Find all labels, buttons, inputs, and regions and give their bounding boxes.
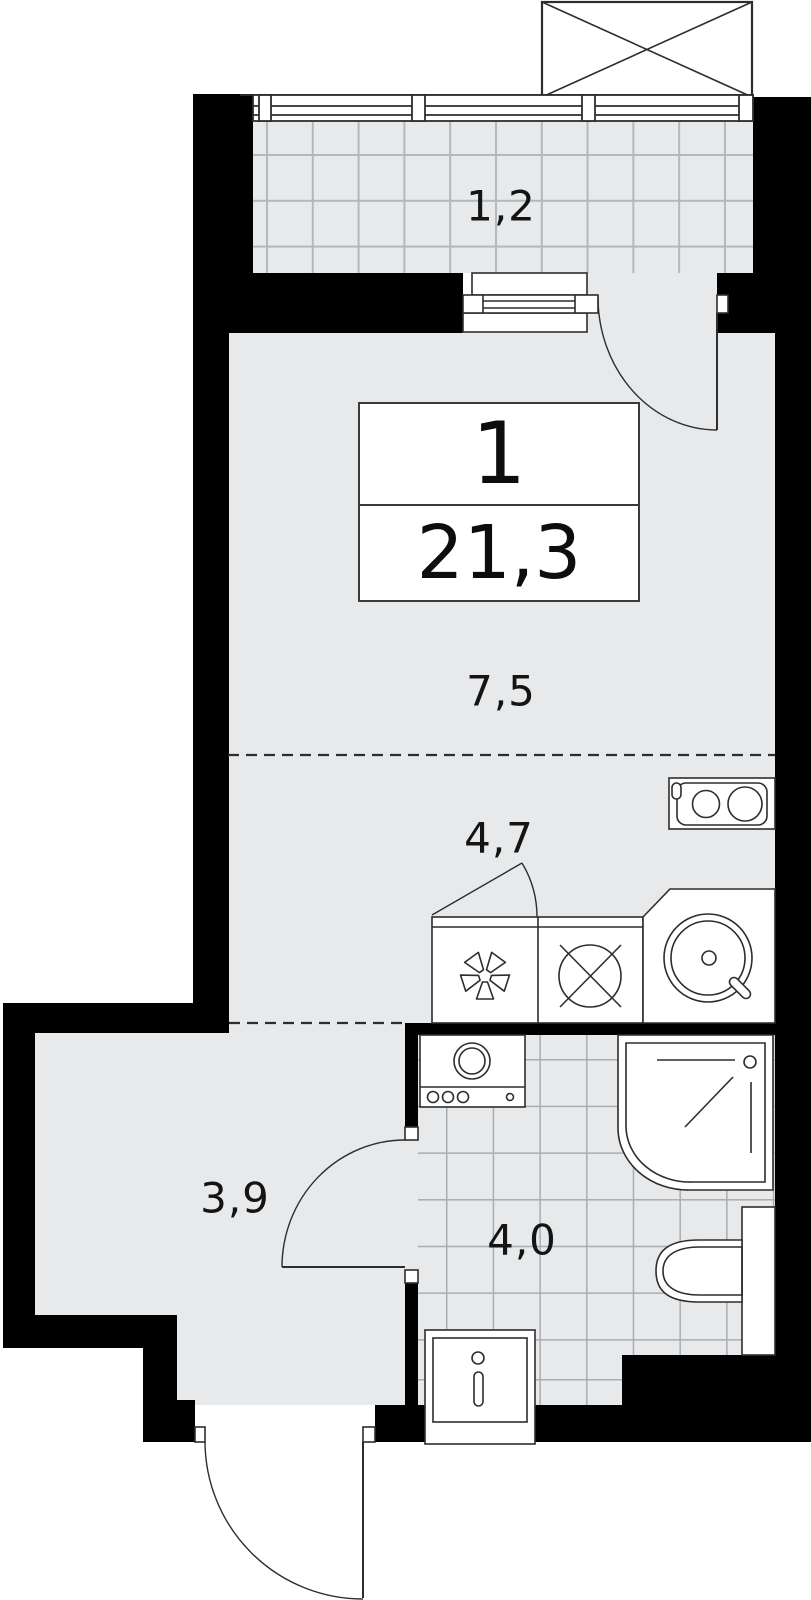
bathroom-doorway-floor bbox=[405, 1140, 418, 1270]
bathroom-floor-low bbox=[418, 1355, 622, 1405]
wall-hall-top bbox=[3, 1003, 229, 1033]
wall-under-balcony bbox=[193, 273, 463, 333]
total-area: 21,3 bbox=[360, 504, 638, 600]
wall-hinge-upper bbox=[717, 273, 728, 295]
wall-bathroom-top bbox=[405, 1023, 775, 1035]
wall-entry-right bbox=[375, 1405, 622, 1442]
wall-room-left bbox=[193, 333, 229, 1003]
kitchen-area-label: 4,7 bbox=[464, 814, 534, 863]
entrance-door-icon bbox=[195, 1427, 375, 1599]
living-room-area-label: 7,5 bbox=[466, 667, 536, 716]
shaft-box-icon bbox=[542, 2, 752, 97]
balcony-glazing-icon bbox=[240, 95, 753, 121]
wall-hinge-lower bbox=[717, 313, 728, 333]
bathroom-floor bbox=[418, 1035, 775, 1355]
floor-plan: 1 21,3 1,2 7,5 4,7 3,9 4,0 bbox=[0, 0, 811, 1600]
hallway-area-label: 3,9 bbox=[200, 1174, 270, 1223]
apartment-info-box: 1 21,3 bbox=[358, 402, 640, 602]
wall-door-right-band bbox=[728, 273, 811, 333]
wall-bathroom-left-lower bbox=[405, 1283, 418, 1405]
wall-bottom-right-block bbox=[622, 1355, 811, 1442]
balcony-doorway-floor bbox=[587, 273, 717, 333]
wall-balcony-right bbox=[753, 97, 811, 273]
wall-hall-left bbox=[3, 1003, 35, 1348]
wall-right bbox=[775, 333, 811, 1355]
wall-balcony-left bbox=[193, 94, 253, 273]
wall-entry-left bbox=[143, 1400, 195, 1442]
hallway-floor-step bbox=[177, 1315, 229, 1405]
balcony-area-label: 1,2 bbox=[466, 182, 536, 231]
bathroom-area-label: 4,0 bbox=[487, 1216, 557, 1265]
wall-hall-bottom-left bbox=[3, 1315, 143, 1348]
wall-bathroom-left-upper bbox=[405, 1023, 418, 1127]
rooms-count: 1 bbox=[360, 404, 638, 504]
